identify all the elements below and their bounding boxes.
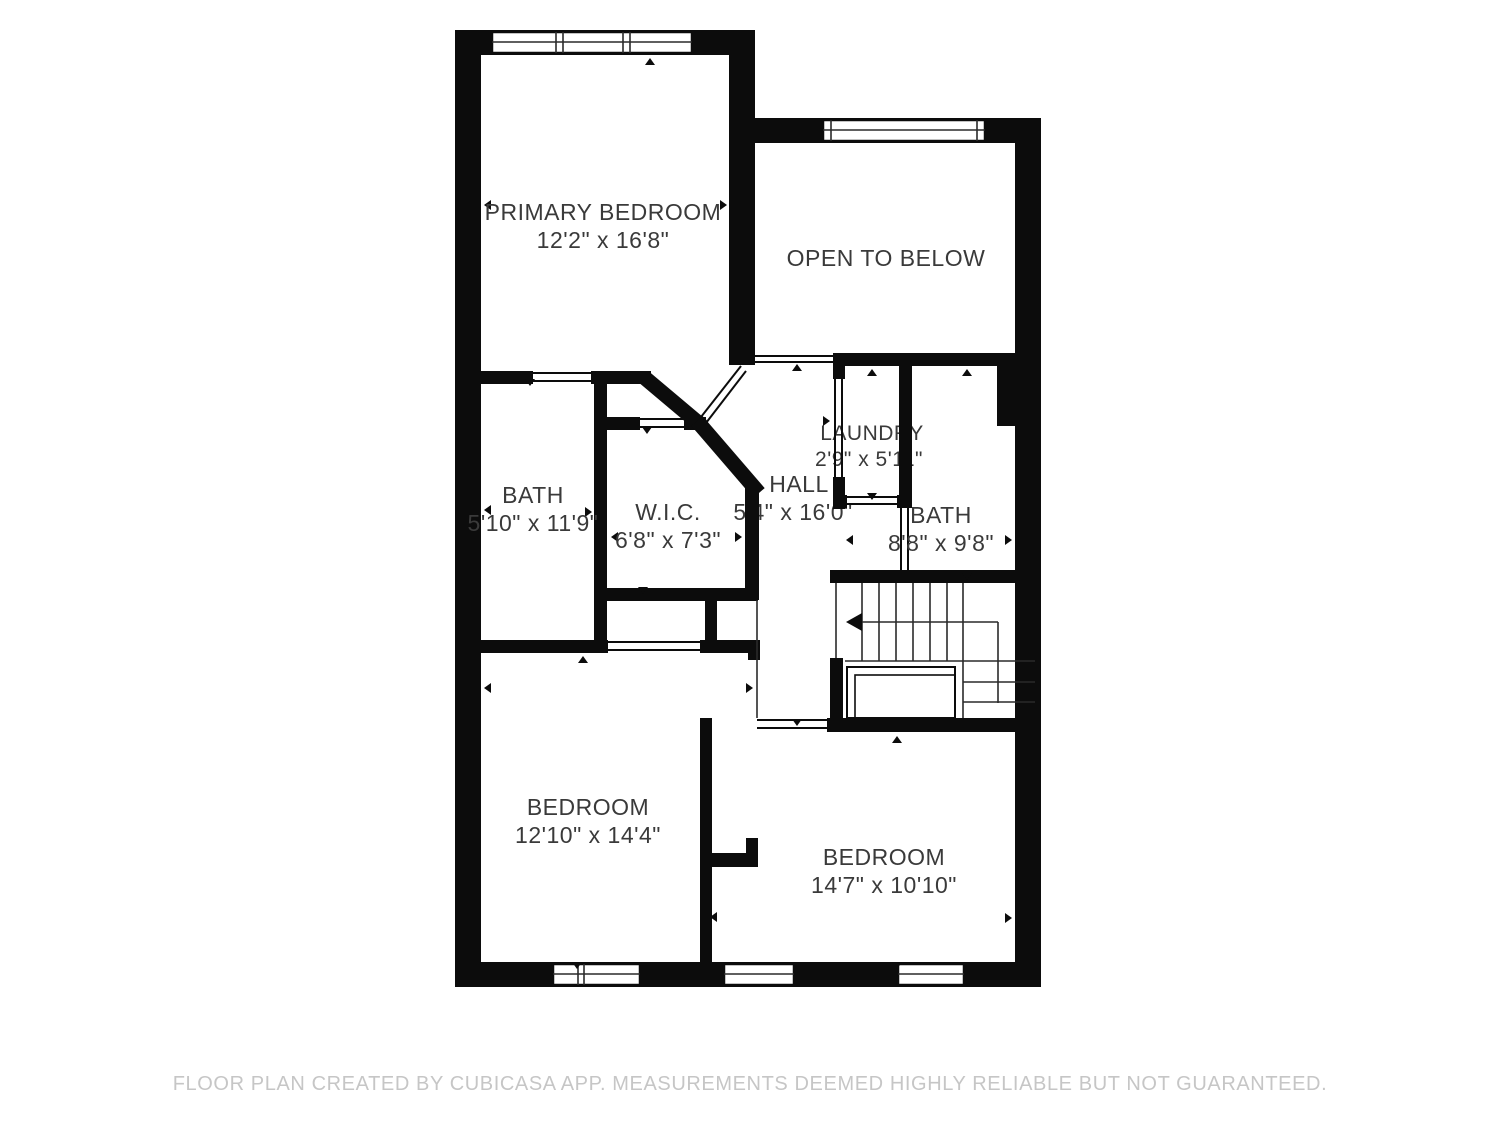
wall-exterior-right [1015,118,1041,987]
room-label-open-to-below: OPEN TO BELOW [787,245,986,271]
room-dims-bath1: 5'10" x 11'9" [468,510,599,536]
wall-primary-right [729,30,755,365]
marker-right [746,683,753,693]
floorplan-canvas: HALL 5'4" x 16'0" LAUNDRY 2'9" x 5'11" [0,0,1500,1125]
marker-up [892,736,902,743]
room-dims-bedroom1: 12'10" x 14'4" [515,822,661,848]
marker-up [645,58,655,65]
room-dims-bedroom2: 14'7" x 10'10" [811,872,957,898]
marker-left [846,535,853,545]
marker-up [867,369,877,376]
wall-bedroom-divider [700,718,712,987]
wall-laundry-right [899,353,912,498]
wall-laundry-left-top [833,357,845,379]
wall-wic-bottom [594,588,758,601]
room-label-bath2: BATH [910,502,972,528]
wall-bedroom1-top-a [455,640,608,653]
stairs [845,583,1035,718]
room-label-hall: HALL [769,471,829,497]
room-dims-bath2: 8'8" x 9'8" [888,530,994,556]
room-dims-wic: 6'8" x 7'3" [615,527,721,553]
footer-disclaimer: FLOOR PLAN CREATED BY CUBICASA APP. MEAS… [173,1073,1328,1095]
marker-right [1005,535,1012,545]
stair-void-inner [855,675,955,718]
wall-wic-right [745,487,759,600]
room-label-wic: W.I.C. [635,499,701,525]
marker-right [735,532,742,542]
wall-duct-block [997,358,1019,426]
wall-stairs-top [830,570,1041,583]
room-label-bath1: BATH [502,482,564,508]
room-label-bedroom1: BEDROOM [527,794,649,820]
wall-exterior-left [455,30,481,987]
door-primary-hall-leaf [701,366,741,417]
wall-bedroom2-top [827,718,1041,732]
marker-up [962,369,972,376]
marker-up [578,656,588,663]
stair-direction-arrow [846,613,862,631]
room-dims-primary-bedroom: 12'2" x 16'8" [537,227,670,253]
marker-up [792,364,802,371]
wall-hall-stub [748,640,760,660]
wall-primary-bottom-a [455,371,533,384]
wall-wic-top-a [600,417,640,430]
marker-left [484,683,491,693]
marker-down [642,427,652,434]
floorplan-svg: HALL 5'4" x 16'0" LAUNDRY 2'9" x 5'11" [0,0,1500,1125]
room-label-bedroom2: BEDROOM [823,844,945,870]
room-label-primary-bedroom: PRIMARY BEDROOM [485,199,722,225]
door-primary-hall-leaf-2 [706,371,746,423]
wall-wic-diagonal [697,421,759,493]
marker-right [1005,913,1012,923]
marker-down [792,719,802,726]
wall-laundry-bottom-a [833,495,847,508]
wall-closet2-stub [746,838,758,867]
under-wall-labels: HALL 5'4" x 16'0" LAUNDRY 2'9" x 5'11" [733,422,923,525]
